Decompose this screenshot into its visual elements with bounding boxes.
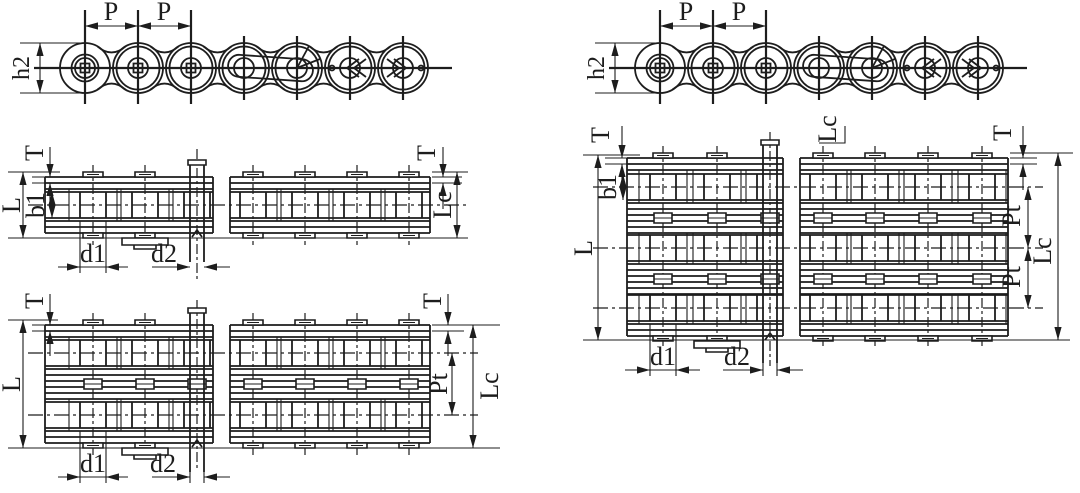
connecting-pin-cap xyxy=(761,140,779,145)
side-view-art xyxy=(595,10,1027,104)
label-plate-thickness: T xyxy=(586,127,615,143)
label-roller-diameter: d1 xyxy=(80,239,106,268)
label-connecting-length: Lc xyxy=(1028,237,1057,264)
label-transverse-pitch: Pt xyxy=(997,204,1026,226)
label-pitch: P xyxy=(157,0,171,26)
label-roller-diameter: d1 xyxy=(80,449,106,478)
label-plate-thickness: T xyxy=(20,293,49,309)
connecting-pin-cap xyxy=(188,308,206,313)
label-plate-thickness: T xyxy=(988,125,1017,141)
plate-edges xyxy=(627,158,1008,336)
side-view-art xyxy=(20,10,452,104)
roller-chain-dimension-diagram: P P h2 P P h2 xyxy=(0,0,1080,493)
panel-triplex-plan: T b1 L d1 d2 Lc T Pt Pt Lc xyxy=(565,118,1080,410)
label-pitch: P xyxy=(732,0,746,26)
label-plate-thickness: T xyxy=(418,293,447,309)
label-plate-thickness: T xyxy=(20,145,49,161)
thickness-extension-lines-right xyxy=(1010,158,1037,164)
label-height-h2: h2 xyxy=(9,56,35,80)
label-roller-diameter: d1 xyxy=(650,342,676,371)
link-end-edges xyxy=(627,158,1008,336)
pin-centerlines xyxy=(663,146,982,348)
label-pitch: P xyxy=(104,0,118,26)
thickness-extension-lines-right xyxy=(432,325,464,331)
label-plate-thickness: T xyxy=(412,145,441,161)
label-transverse-pitch: Pt xyxy=(997,265,1026,287)
panel-side-view-left: P P h2 xyxy=(0,0,470,118)
panel-simplex-plan: T L b1 d1 d2 T Lc xyxy=(0,135,480,287)
label-pin-diameter: d2 xyxy=(151,239,177,268)
label-pin-diameter: d2 xyxy=(150,449,176,478)
label-pin-length: L xyxy=(0,376,26,392)
label-height-h2: h2 xyxy=(584,56,610,80)
pin-dia-extension-lines xyxy=(190,472,204,483)
panel-side-view-right: P P h2 xyxy=(575,0,1045,118)
label-connecting-length: Lc xyxy=(475,372,504,399)
label-pin-length: L xyxy=(569,240,598,256)
label-connecting-length: Lc xyxy=(428,191,457,218)
strand-centerlines xyxy=(593,187,1043,308)
label-inner-width: b1 xyxy=(21,192,50,218)
label-transverse-pitch: Pt xyxy=(424,372,453,394)
label-pin-diameter: d2 xyxy=(724,342,750,371)
connecting-pin-cap xyxy=(188,160,206,165)
label-inner-width: b1 xyxy=(593,174,622,200)
label-pitch: P xyxy=(679,0,693,26)
plate-end-steps xyxy=(69,337,385,431)
panel-duplex-plan: T L d1 d2 T Pt Lc xyxy=(0,288,510,493)
label-connecting-length-top: Lc xyxy=(813,115,842,142)
